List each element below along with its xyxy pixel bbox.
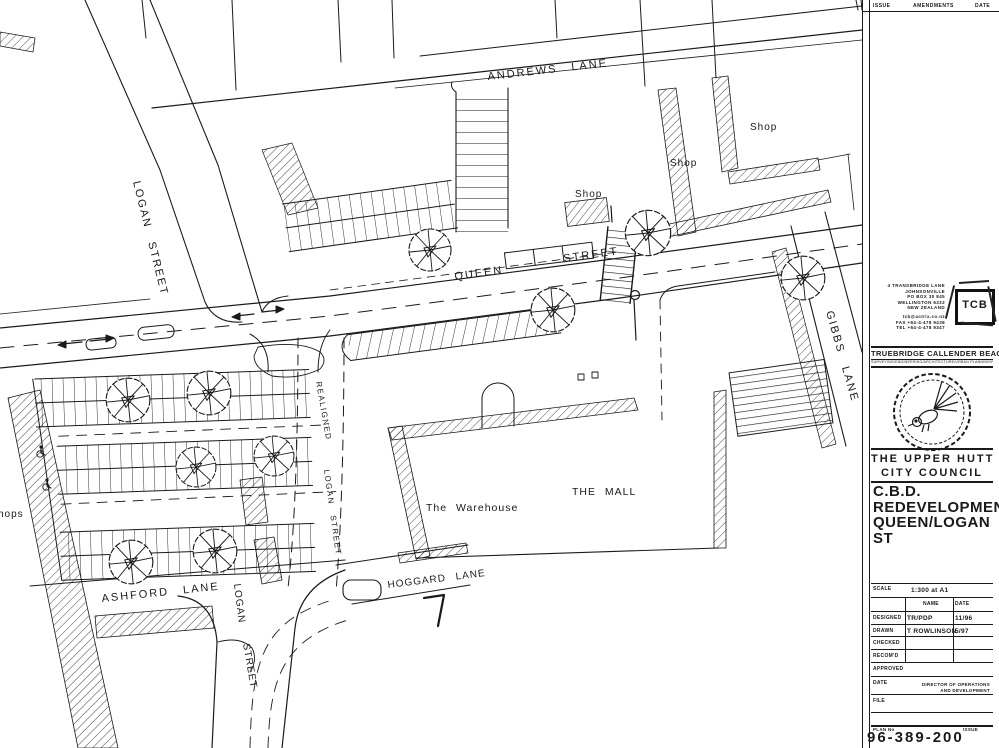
council-fantail-logo	[884, 369, 980, 455]
label-logan-lower: LOGAN	[231, 583, 247, 624]
drawn-row: DRAWN T ROWLINSON 5/97	[871, 625, 993, 637]
project-title-line3: QUEEN/LOGAN ST	[873, 515, 997, 546]
designed-row: DESIGNED TR/PDP 11/96	[871, 612, 993, 625]
label-realigned: REALIGNED	[314, 381, 333, 441]
date-label: DATE	[873, 680, 887, 686]
project-title-line1: C.B.D.	[873, 484, 997, 500]
divider	[871, 346, 993, 348]
firm-address: 4 TRANSBRIDGE LANE JOHNSONVILLE PO BOX 3…	[875, 283, 945, 331]
scale-label: SCALE	[873, 586, 891, 592]
approved-row: APPROVED	[871, 663, 993, 677]
shop-walls	[565, 76, 854, 244]
project-title: C.B.D. REDEVELOPMENT QUEEN/LOGAN ST	[873, 484, 997, 546]
issue-label: ISSUE	[963, 727, 978, 732]
divider	[871, 448, 993, 450]
logan-street-lower-road	[178, 570, 348, 748]
client-name-line1: THE UPPER HUTT	[871, 453, 993, 465]
designed-date: 11/96	[955, 615, 972, 622]
director-line2: AND DEVELOPMENT	[940, 688, 990, 693]
drawn-label: DRAWN	[873, 628, 893, 634]
drawn-date: 5/97	[955, 628, 969, 635]
recomd-row: RECOM'D	[871, 650, 993, 663]
label-logan-street-mid: LOGAN STREET	[322, 469, 343, 556]
logan-street-upper-road	[85, 0, 318, 322]
file-row: FILE	[871, 695, 993, 713]
label-shops-left: hops	[0, 509, 24, 520]
scale-row: SCALE 1:300 at A1	[871, 583, 993, 598]
site-plan-drawing: ANDREWS LANE QUEEN STREET LOGAN STREET G…	[0, 0, 862, 748]
drawn-name: T ROWLINSON	[907, 628, 957, 635]
date-col-label: DATE	[975, 3, 990, 9]
label-logan-street-upper: LOGAN STREET	[130, 180, 170, 297]
label-the-mall: THE MALL	[572, 486, 636, 498]
label-shop-1: Shop	[575, 189, 602, 200]
title-block: ISSUE AMENDMENTS DATE 4 TRANSBRIDGE LANE…	[862, 0, 999, 748]
label-shop-2: Shop	[670, 158, 697, 169]
checked-label: CHECKED	[873, 640, 900, 646]
address-line: TEL +64-4-478 9347	[875, 325, 945, 331]
plan-number: 96-389-200	[867, 729, 964, 746]
checked-row: CHECKED	[871, 637, 993, 650]
date-signature-row: DATE DIRECTOR OF OPERATIONS AND DEVELOPM…	[871, 677, 993, 695]
parking-band-mall-frontage	[340, 307, 561, 361]
divider	[871, 366, 993, 368]
label-queen: QUEEN	[454, 264, 504, 283]
road-islands	[86, 324, 175, 350]
amendments-header: ISSUE AMENDMENTS DATE	[863, 0, 999, 12]
project-title-line2: REDEVELOPMENT	[873, 500, 997, 516]
label-hoggard-lane: HOGGARD LANE	[387, 568, 486, 591]
address-line: NEW ZEALAND	[875, 305, 945, 311]
firm-name: TRUEBRIDGE CALLENDER BEACH LTD	[871, 349, 993, 358]
table-col-line	[905, 598, 906, 663]
table-col-line	[953, 598, 954, 663]
date-col-label: DATE	[955, 601, 969, 607]
director-line1: DIRECTOR OF OPERATIONS	[922, 682, 990, 687]
label-ashford-lane: ASHFORD LANE	[101, 581, 220, 605]
traffic-arrows	[58, 306, 284, 348]
label-street-lower: STREET	[240, 643, 259, 690]
top-building-walls	[0, 0, 716, 90]
recomd-label: RECOM'D	[873, 653, 899, 659]
amendments-col-label: AMENDMENTS	[913, 3, 954, 9]
drawing-sheet: ANDREWS LANE QUEEN STREET LOGAN STREET G…	[0, 0, 999, 748]
parking-row-north	[452, 82, 509, 232]
scale-value: 1:300 at A1	[911, 587, 948, 594]
client-name-line2: CITY COUNCIL	[871, 467, 993, 479]
designed-label: DESIGNED	[873, 615, 902, 621]
firm-tagline: SURVEYING/ENGINEERING/ARCHITECTURE/URBAN…	[871, 360, 993, 364]
approved-label: APPROVED	[873, 666, 903, 672]
designed-name: TR/PDP	[907, 615, 933, 622]
label-andrews-lane: ANDREWS LANE	[487, 57, 609, 83]
label-shop-3: Shop	[750, 122, 777, 133]
name-date-header-row: NAME DATE	[871, 598, 993, 612]
file-label: FILE	[873, 698, 885, 704]
label-warehouse: The Warehouse	[426, 502, 518, 514]
mall-building	[388, 383, 726, 559]
issue-col-label: ISSUE	[873, 3, 891, 9]
name-col-label: NAME	[923, 601, 939, 607]
